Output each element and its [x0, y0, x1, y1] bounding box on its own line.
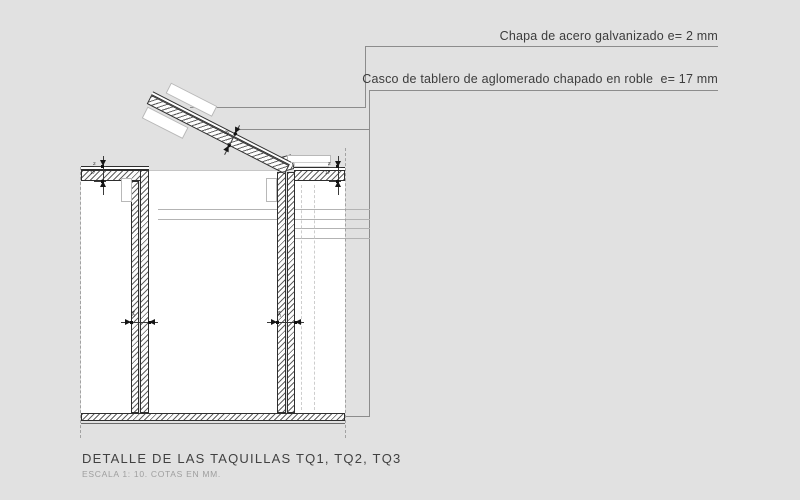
dimension-partition-value: 34	[278, 311, 283, 317]
dimension-tick-line	[94, 166, 106, 167]
shelf-line	[293, 238, 370, 239]
dimension-tick	[101, 165, 104, 168]
back-edge-line	[149, 170, 277, 171]
drawing-sheet: Chapa de acero galvanizado e= 2 mm Casco…	[0, 0, 800, 500]
dimension-steel-value: 2	[93, 162, 96, 167]
hidden-line	[301, 185, 302, 410]
callout-steel-sheet: Chapa de acero galvanizado e= 2 mm	[500, 29, 718, 43]
dimension-tick	[148, 321, 151, 324]
dimension-tick	[101, 180, 104, 183]
dimension-tick	[336, 180, 339, 183]
leader-board-bottom	[345, 416, 370, 417]
hinge-plate-middle	[266, 178, 277, 202]
dimension-steel-value: 2	[328, 162, 331, 167]
bottom-panel-board	[81, 413, 345, 421]
hidden-line	[314, 185, 315, 410]
partition-left-board-b	[140, 170, 149, 413]
dimension-tick	[294, 321, 297, 324]
leader-board-lid	[240, 129, 370, 130]
locker-compartment-left	[81, 181, 131, 413]
cut-line-left	[80, 167, 81, 438]
partition-middle-board-a	[277, 172, 286, 413]
locker-compartment-right	[295, 181, 345, 413]
callout-board: Casco de tablero de aglomerado chapado e…	[362, 72, 718, 86]
partition-middle-board-b	[287, 172, 295, 413]
closed-lid-handle-plate	[294, 162, 329, 167]
shelf-line	[158, 209, 370, 210]
dimension-tick	[276, 321, 279, 324]
locker-compartment-middle	[149, 170, 277, 413]
open-lid: 19	[147, 91, 291, 174]
dimension-board-value: 17	[325, 171, 330, 176]
leader-board-vertical	[369, 90, 370, 417]
cut-line-right	[345, 148, 346, 438]
hinge-plate-left	[121, 178, 132, 202]
callout-board-underline	[369, 90, 718, 91]
shelf-line	[293, 228, 370, 229]
dimension-board-value: 17	[90, 171, 95, 176]
callout-steel-underline	[365, 46, 718, 47]
shelf-line	[158, 219, 370, 220]
dimension-tick	[336, 165, 339, 168]
dimension-tick	[130, 321, 133, 324]
partition-left-board-a	[131, 181, 139, 413]
scale-note: ESCALA 1: 10. COTAS EN MM.	[82, 469, 221, 479]
bottom-base-line	[81, 423, 345, 424]
drawing-title: DETALLE DE LAS TAQUILLAS TQ1, TQ2, TQ3	[82, 451, 401, 466]
dimension-tick-line	[329, 167, 341, 168]
dimension-partition-value: 34	[132, 311, 137, 317]
